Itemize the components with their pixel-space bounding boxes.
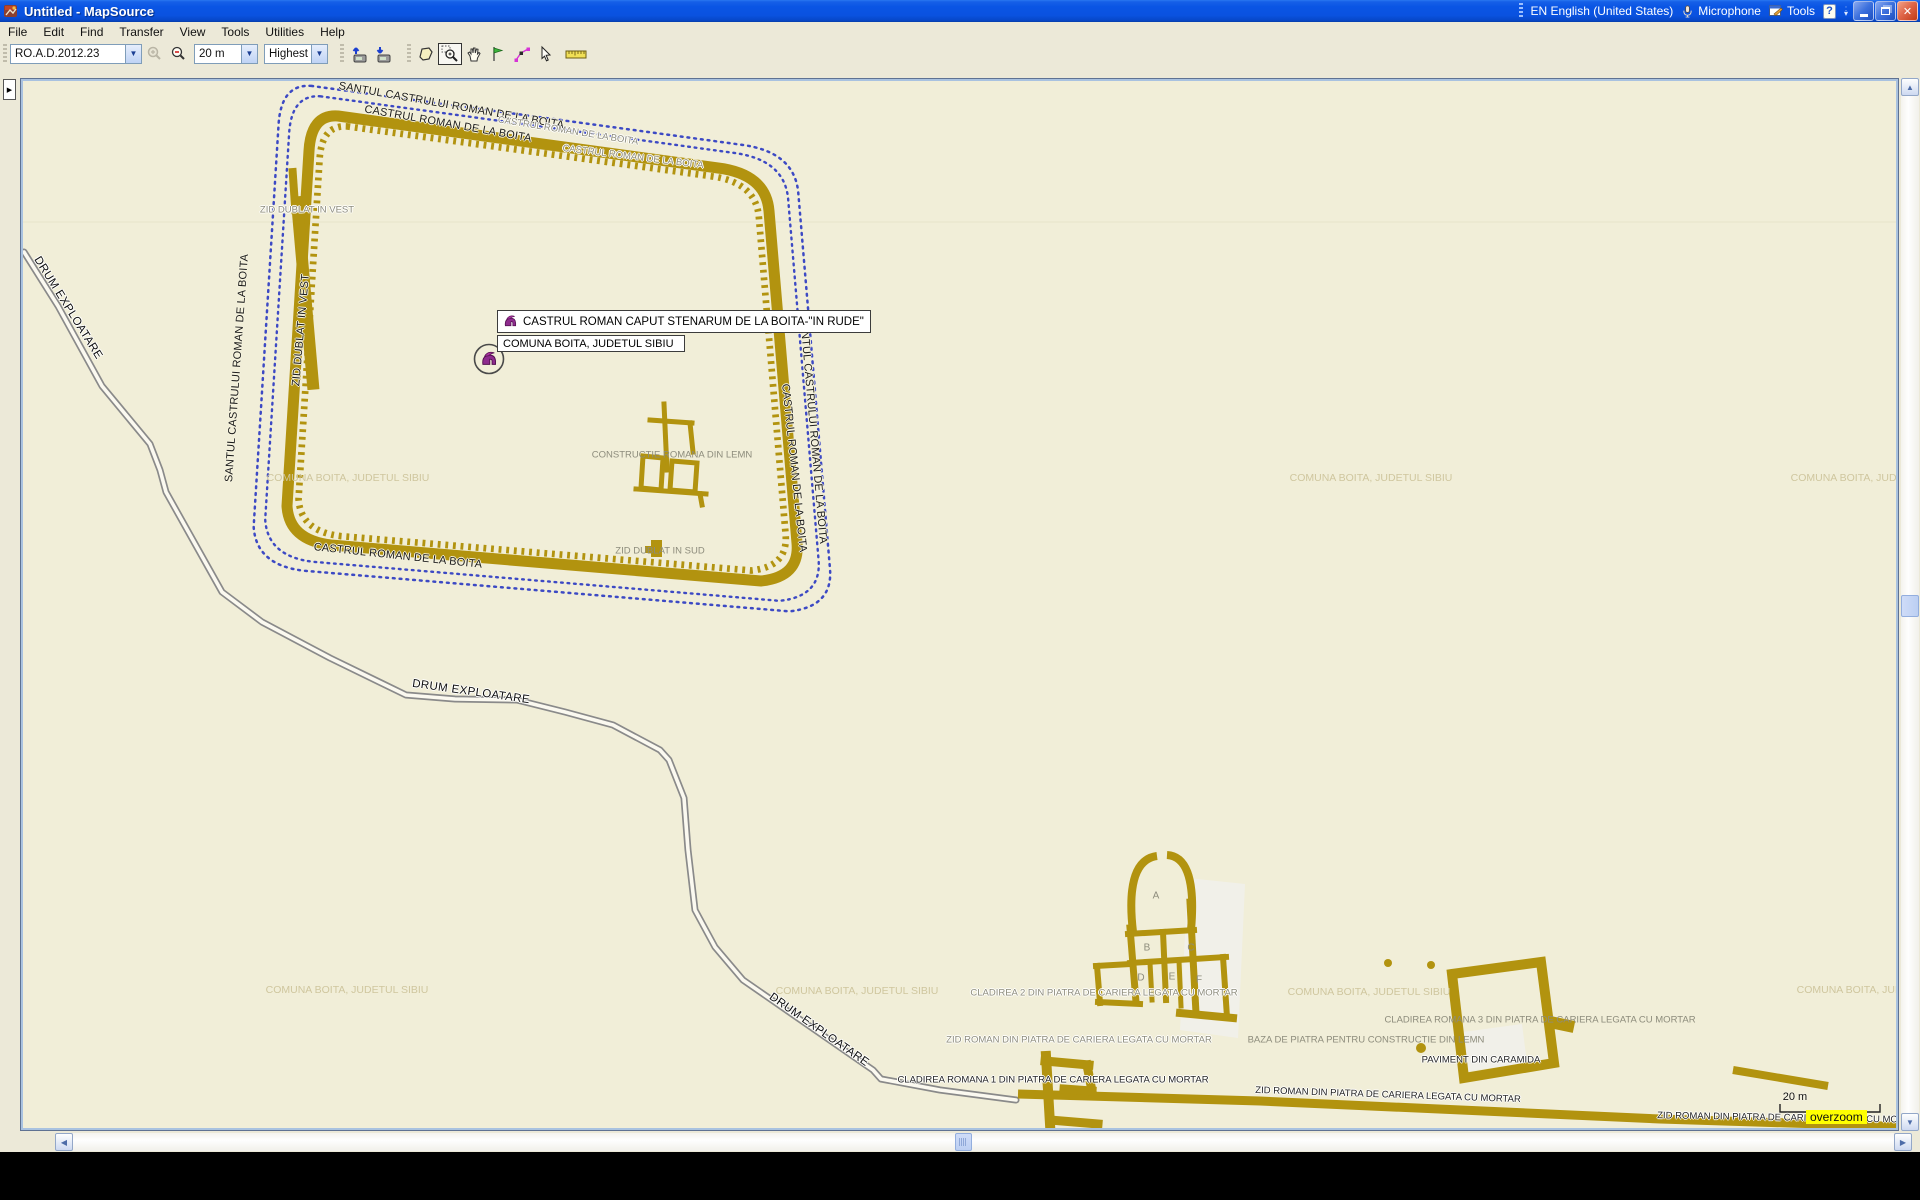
map-tool-button[interactable]: [414, 43, 438, 65]
map-label: ZID DUBLAT IN VEST: [290, 273, 312, 386]
map-label: COMUNA BOITA, JUDETUL SIBIU: [1290, 472, 1453, 484]
left-panel-strip: [0, 66, 20, 1152]
expand-panel-button[interactable]: ▶: [3, 79, 16, 100]
zoom-scale-select[interactable]: 20 m ▼: [194, 44, 258, 64]
scroll-up-button[interactable]: ▲: [1901, 78, 1919, 96]
zoom-in-button[interactable]: [142, 43, 166, 65]
zoom-out-icon: [170, 45, 187, 62]
language-bar: EN English (United States) Microphone To…: [1519, 0, 1848, 22]
vertical-scroll-thumb[interactable]: [1901, 595, 1919, 617]
langbar-tools-label: Tools: [1787, 4, 1815, 18]
menu-utilities[interactable]: Utilities: [257, 24, 312, 40]
menu-file[interactable]: File: [0, 24, 35, 40]
map-label: ZID DUBLAT IN VEST: [260, 205, 354, 216]
waypoint-tool-button[interactable]: [486, 43, 510, 65]
map-label: DRUM EXPLOATARE: [411, 678, 530, 706]
route-tool-icon: [513, 45, 531, 63]
map-label: CLADIREA ROMANA 3 DIN PIATRA DE CARIERA …: [1384, 1015, 1695, 1026]
screen: Untitled - MapSource EN English (United …: [0, 0, 1920, 1200]
map-label: B: [1144, 943, 1151, 954]
receive-from-device-button[interactable]: [371, 43, 395, 65]
map-label: DRUM EXPLOATARE: [31, 254, 104, 361]
map-label: CONSTRUCTIE ROMANA DIN LEMN: [592, 450, 752, 461]
toolbar-handle[interactable]: [407, 44, 411, 64]
map-label: CLADIREA 2 DIN PIATRA DE CARIERA LEGATA …: [970, 988, 1237, 999]
chevron-down-icon[interactable]: ▼: [241, 45, 257, 63]
restore-button[interactable]: [1875, 1, 1896, 21]
tooltip-subtitle-text: COMUNA BOITA, JUDETUL SIBIU: [503, 338, 674, 350]
receive-from-device-icon: [374, 45, 393, 63]
map-label: CASTRUL ROMAN DE LA BOITA: [313, 541, 483, 571]
hand-icon: [465, 45, 483, 63]
map-label: ZID DUBLAT IN SUD: [615, 546, 704, 557]
menu-transfer[interactable]: Transfer: [111, 24, 171, 40]
product-select[interactable]: RO.A.D.2012.23 ▼: [10, 44, 142, 64]
map-label: 20 m: [1783, 1091, 1807, 1103]
microphone-icon: [1681, 5, 1694, 18]
menu-bar: File Edit Find Transfer View Tools Utili…: [0, 22, 1920, 41]
horizontal-scroll-thumb[interactable]: [955, 1133, 972, 1151]
horizontal-scrollbar[interactable]: ◀ ▶: [55, 1133, 1912, 1151]
chevron-down-icon[interactable]: ▼: [125, 45, 141, 63]
zoom-tool-icon: [441, 45, 459, 63]
mapsource-window: Untitled - MapSource EN English (United …: [0, 0, 1920, 1152]
zoom-scale-value: 20 m: [195, 48, 241, 60]
toolbar-handle[interactable]: [3, 44, 7, 64]
menu-tools[interactable]: Tools: [213, 24, 257, 40]
send-to-device-icon: [350, 45, 369, 63]
map-label: COMUNA BOITA, JUDETUL SIBIU: [266, 984, 429, 996]
waypoint-tooltip-title: CASTRUL ROMAN CAPUT STENARUM DE LA BOITA…: [497, 310, 871, 333]
microphone-label: Microphone: [1698, 4, 1761, 18]
cursor-arrow-icon: [537, 45, 555, 63]
map-label: COMUNA BOITA, JUDETUL SIBIU: [1288, 986, 1451, 998]
langbar-tools-control[interactable]: Tools: [1769, 4, 1815, 18]
route-tool-button[interactable]: [510, 43, 534, 65]
menu-help[interactable]: Help: [312, 24, 353, 40]
map-label: E: [1169, 972, 1176, 983]
detail-level-value: Highest: [265, 48, 311, 60]
measure-tool-button[interactable]: [564, 43, 588, 65]
waypoint-tooltip-subtitle: COMUNA BOITA, JUDETUL SIBIU: [497, 335, 685, 352]
vertical-scrollbar[interactable]: ▲ ▼: [1901, 78, 1919, 1131]
zoom-in-icon: [146, 45, 163, 62]
map-label: ZID ROMAN DIN PIATRA DE CARIERA LEGATA C…: [946, 1035, 1212, 1046]
title-bar: Untitled - MapSource EN English (United …: [0, 0, 1920, 22]
map-label: COMUNA BOITA, JUDETUL SIBIU: [1797, 984, 1896, 996]
langbar-help-button[interactable]: ?: [1823, 4, 1836, 19]
scroll-down-button[interactable]: ▼: [1901, 1113, 1919, 1131]
selection-tool-button[interactable]: [534, 43, 558, 65]
langbar-options-button[interactable]: :▾: [1844, 6, 1848, 16]
roman-helmet-icon: [503, 314, 518, 329]
window-title: Untitled - MapSource: [24, 4, 154, 19]
minimize-button[interactable]: [1853, 1, 1874, 21]
map-label: D: [1137, 973, 1144, 984]
product-select-value: RO.A.D.2012.23: [11, 48, 125, 60]
map-label: DRUM EXPLOATARE: [767, 991, 871, 1069]
chevron-down-icon[interactable]: ▼: [311, 45, 327, 63]
map-label-layer: SANTUL CASTRULUI ROMAN DE LA BOITA.CASTR…: [23, 81, 1896, 1128]
map-label: F: [1196, 975, 1202, 986]
zoom-out-button[interactable]: [166, 43, 190, 65]
close-button[interactable]: ✕: [1897, 1, 1918, 21]
map-label: CASTRUL ROMAN DE LA BOITA: [562, 143, 704, 171]
ruler-icon: [565, 46, 587, 62]
menu-find[interactable]: Find: [72, 24, 111, 40]
map-label: CLADIREA ROMANA 1 DIN PIATRA DE CARIERA …: [897, 1075, 1208, 1086]
detail-level-select[interactable]: Highest ▼: [264, 44, 328, 64]
map-label: BAZA DE PIATRA PENTRU CONSTRUCTIE DIN LE…: [1248, 1035, 1485, 1046]
flag-icon: [489, 45, 507, 63]
map-canvas[interactable]: SANTUL CASTRULUI ROMAN DE LA BOITA.CASTR…: [23, 81, 1896, 1128]
send-to-device-button[interactable]: [347, 43, 371, 65]
language-bar-handle[interactable]: [1519, 3, 1523, 19]
map-label: A: [1153, 891, 1160, 902]
map-label: C: [1187, 943, 1194, 954]
zoom-tool-button[interactable]: [438, 43, 462, 65]
map-tool-icon: [417, 45, 435, 63]
pan-tool-button[interactable]: [462, 43, 486, 65]
scroll-right-button[interactable]: ▶: [1894, 1133, 1912, 1151]
map-label: PAVIMENT DIN CARAMIDA: [1422, 1055, 1541, 1066]
map-label: COMUNA BOITA, JUDETUL SIBIU: [776, 985, 939, 997]
menu-view[interactable]: View: [172, 24, 214, 40]
scroll-left-button[interactable]: ◀: [55, 1133, 73, 1151]
language-indicator[interactable]: EN English (United States): [1531, 4, 1674, 18]
map-viewport: SANTUL CASTRULUI ROMAN DE LA BOITA.CASTR…: [20, 78, 1899, 1131]
langbar-tools-icon: [1769, 5, 1783, 17]
window-controls: ✕: [1853, 1, 1918, 21]
map-label: ZID ROMAN DIN PIATRA DE CARIERA LEGATA C…: [1255, 1085, 1521, 1105]
menu-edit[interactable]: Edit: [35, 24, 72, 40]
map-label: SANTUL CASTRULUI ROMAN DE LA BOITA: [223, 254, 251, 483]
microphone-control[interactable]: Microphone: [1681, 4, 1761, 18]
map-label: COMUNA BOITA, JUDETUL SIBIU: [267, 472, 430, 484]
toolbar-handle[interactable]: [340, 44, 344, 64]
toolbar: RO.A.D.2012.23 ▼ 20 m ▼ Highest ▼: [0, 41, 1920, 66]
tooltip-title-text: CASTRUL ROMAN CAPUT STENARUM DE LA BOITA…: [523, 316, 864, 328]
overzoom-badge: overzoom: [1806, 1110, 1867, 1124]
mapsource-app-icon: [3, 3, 19, 19]
map-label: COMUNA BOITA, JUDETUL SIBIU: [1791, 472, 1896, 484]
